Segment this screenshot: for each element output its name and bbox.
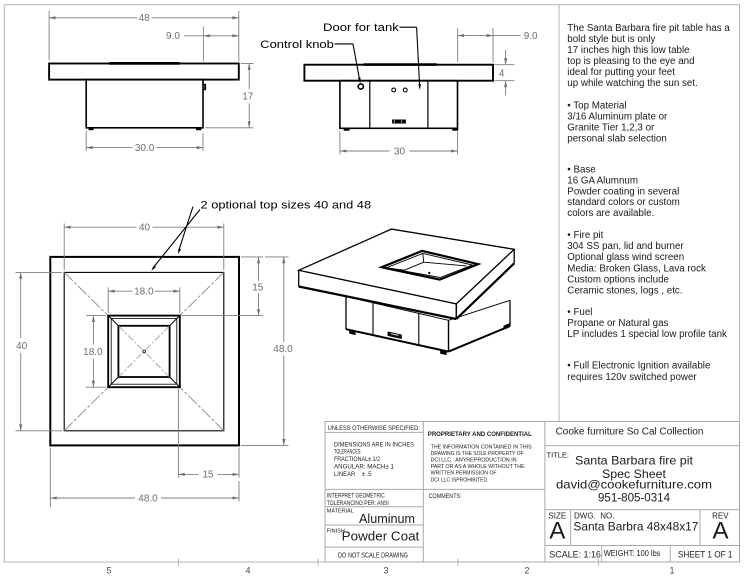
svg-text:UNLESS OTHERWISE SPECIFIED:: UNLESS OTHERWISE SPECIFIED: [328,425,420,432]
svg-text:DRAWING IS THE SOLE PROPERTY O: DRAWING IS THE SOLE PROPERTY OF [431,451,524,457]
svg-text:1: 1 [669,566,674,576]
svg-text:top is pleasing to the eye and: top is pleasing to the eye and [567,56,694,67]
svg-text:DCI LLC ISPROHIBITED.: DCI LLC ISPROHIBITED. [431,477,489,483]
svg-text:3: 3 [383,566,388,576]
svg-text:40: 40 [139,223,151,234]
svg-text:Optional glass wind screen: Optional glass wind screen [567,252,684,263]
svg-text:A: A [712,517,728,544]
svg-text:PROPRIETARY AND CONFIDENTIAL: PROPRIETARY AND CONFIDENTIAL [428,431,532,438]
svg-text:personal slab selection: personal slab selection [567,133,666,144]
svg-text:• Fuel: • Fuel [567,307,592,318]
svg-text:30: 30 [394,146,406,157]
svg-text:WRITTEN PERMISSION OF: WRITTEN PERMISSION OF [431,471,497,477]
svg-text:17 inches high this low table: 17 inches high this low table [567,45,690,56]
svg-text:LP includes 1 special low prof: LP includes 1 special low profile tank [567,329,727,340]
svg-text:• Full Electronic Ignition av: • Full Electronic Ignition available [567,360,711,371]
svg-text:DCI LLC. ANYREPRODUCTION IN: DCI LLC. ANYREPRODUCTION IN [431,458,517,464]
svg-text:17: 17 [242,92,254,103]
svg-text:Door for tank: Door for tank [323,22,399,34]
svg-text:FRACTIONAL± 1/2: FRACTIONAL± 1/2 [334,456,380,463]
svg-text:2: 2 [524,566,529,576]
svg-text:18.0: 18.0 [83,347,103,358]
svg-text:3/16 Aluminum plate or: 3/16 Aluminum plate or [567,111,668,122]
svg-text:requires 120v switched power: requires 120v switched power [567,372,697,383]
svg-text:TITLE:: TITLE: [547,451,570,460]
svg-text:ANGULAR: MACH± 1: ANGULAR: MACH± 1 [334,464,394,471]
svg-text:Santa Barbra 48x48x17: Santa Barbra 48x48x17 [573,520,698,534]
svg-text:Ceramic stones, logs , etc.: Ceramic stones, logs , etc. [567,286,682,297]
svg-text:SCALE: 1:16: SCALE: 1:16 [549,550,601,560]
svg-text:15: 15 [202,470,214,481]
svg-text:Powder coating in several: Powder coating in several [567,186,679,197]
svg-text:2 optional top sizes 40 and 48: 2 optional top sizes 40 and 48 [201,200,372,212]
svg-text:Powder Coat: Powder Coat [342,528,420,543]
svg-text:Aluminum: Aluminum [359,512,415,526]
svg-text:9.0: 9.0 [166,31,180,42]
svg-text:• Fire pit: • Fire pit [567,230,603,241]
svg-text:30.0: 30.0 [135,143,155,154]
svg-text:standard colors or custom: standard colors or custom [567,197,680,208]
svg-text:DIMENSIONS ARE IN INCHES: DIMENSIONS ARE IN INCHES [334,441,414,448]
svg-text:PART OR AS A WHOLE WITHOUT THE: PART OR AS A WHOLE WITHOUT THE [431,464,525,470]
svg-text:ideal for putting your feet: ideal for putting your feet [567,67,675,78]
svg-text:48.0: 48.0 [273,344,293,355]
svg-text:Custom options include: Custom options include [567,274,669,285]
svg-text:WEIGHT: 100 lbs: WEIGHT: 100 lbs [604,549,661,558]
svg-text:THE INFORMATION CONTAINED IN T: THE INFORMATION CONTAINED IN THIS [431,445,532,451]
svg-text:5: 5 [106,566,111,576]
svg-text:INTERPRET GEOMETRIC: INTERPRET GEOMETRIC [327,493,385,500]
svg-text:15: 15 [252,283,264,294]
svg-text:48.0: 48.0 [138,493,158,504]
svg-text:david@cookefurniture.com: david@cookefurniture.com [556,478,712,492]
svg-text:colors are available.: colors are available. [567,208,654,219]
svg-text:COMMENTS:: COMMENTS: [429,493,462,500]
svg-text:Media: Broken Glass, Lava rock: Media: Broken Glass, Lava rock [567,263,706,274]
svg-text:4: 4 [245,566,250,576]
svg-text:Control knob: Control knob [260,39,334,51]
svg-text:bold style but is only: bold style but is only [567,34,655,45]
svg-text:• Top Material: • Top Material [567,100,626,111]
svg-text:TOLERANCING PER: ANSI: TOLERANCING PER: ANSI [327,500,389,507]
svg-text:16 GA Alumnum: 16 GA Alumnum [567,175,638,186]
svg-text:304 SS pan, lid and burner: 304 SS pan, lid and burner [567,241,684,252]
svg-text:40: 40 [16,341,28,352]
svg-text:MATERIAL: MATERIAL [327,509,354,515]
svg-text:up while watching the sun set.: up while watching the sun set. [567,78,697,89]
svg-text:Granite Tier 1,2,3 or: Granite Tier 1,2,3 or [567,122,655,133]
svg-text:48: 48 [139,13,151,24]
svg-text:TOLERANCES:: TOLERANCES: [334,449,362,456]
svg-text:18.0: 18.0 [134,287,154,298]
svg-text:951-805-0314: 951-805-0314 [598,491,670,505]
svg-text:9.0: 9.0 [524,31,538,42]
svg-text:Propane or Natural gas: Propane or Natural gas [567,318,668,329]
svg-text:The Santa Barbara fire pit tab: The Santa Barbara fire pit table has a [567,23,730,34]
svg-text:A: A [549,518,565,545]
svg-text:Santa Barbara fire pit: Santa Barbara fire pit [575,453,694,467]
svg-text:SHEET 1 OF 1: SHEET 1 OF 1 [678,550,733,560]
svg-text:Cooke furniture So Cal Collect: Cooke furniture So Cal Collection [556,426,704,437]
svg-text:• Base: • Base [567,164,596,175]
svg-text:DO NOT SCALE DRAWING: DO NOT SCALE DRAWING [338,553,408,560]
svg-text:LINEAR ± .5: LINEAR ± .5 [334,471,372,478]
svg-text:4: 4 [499,68,505,79]
